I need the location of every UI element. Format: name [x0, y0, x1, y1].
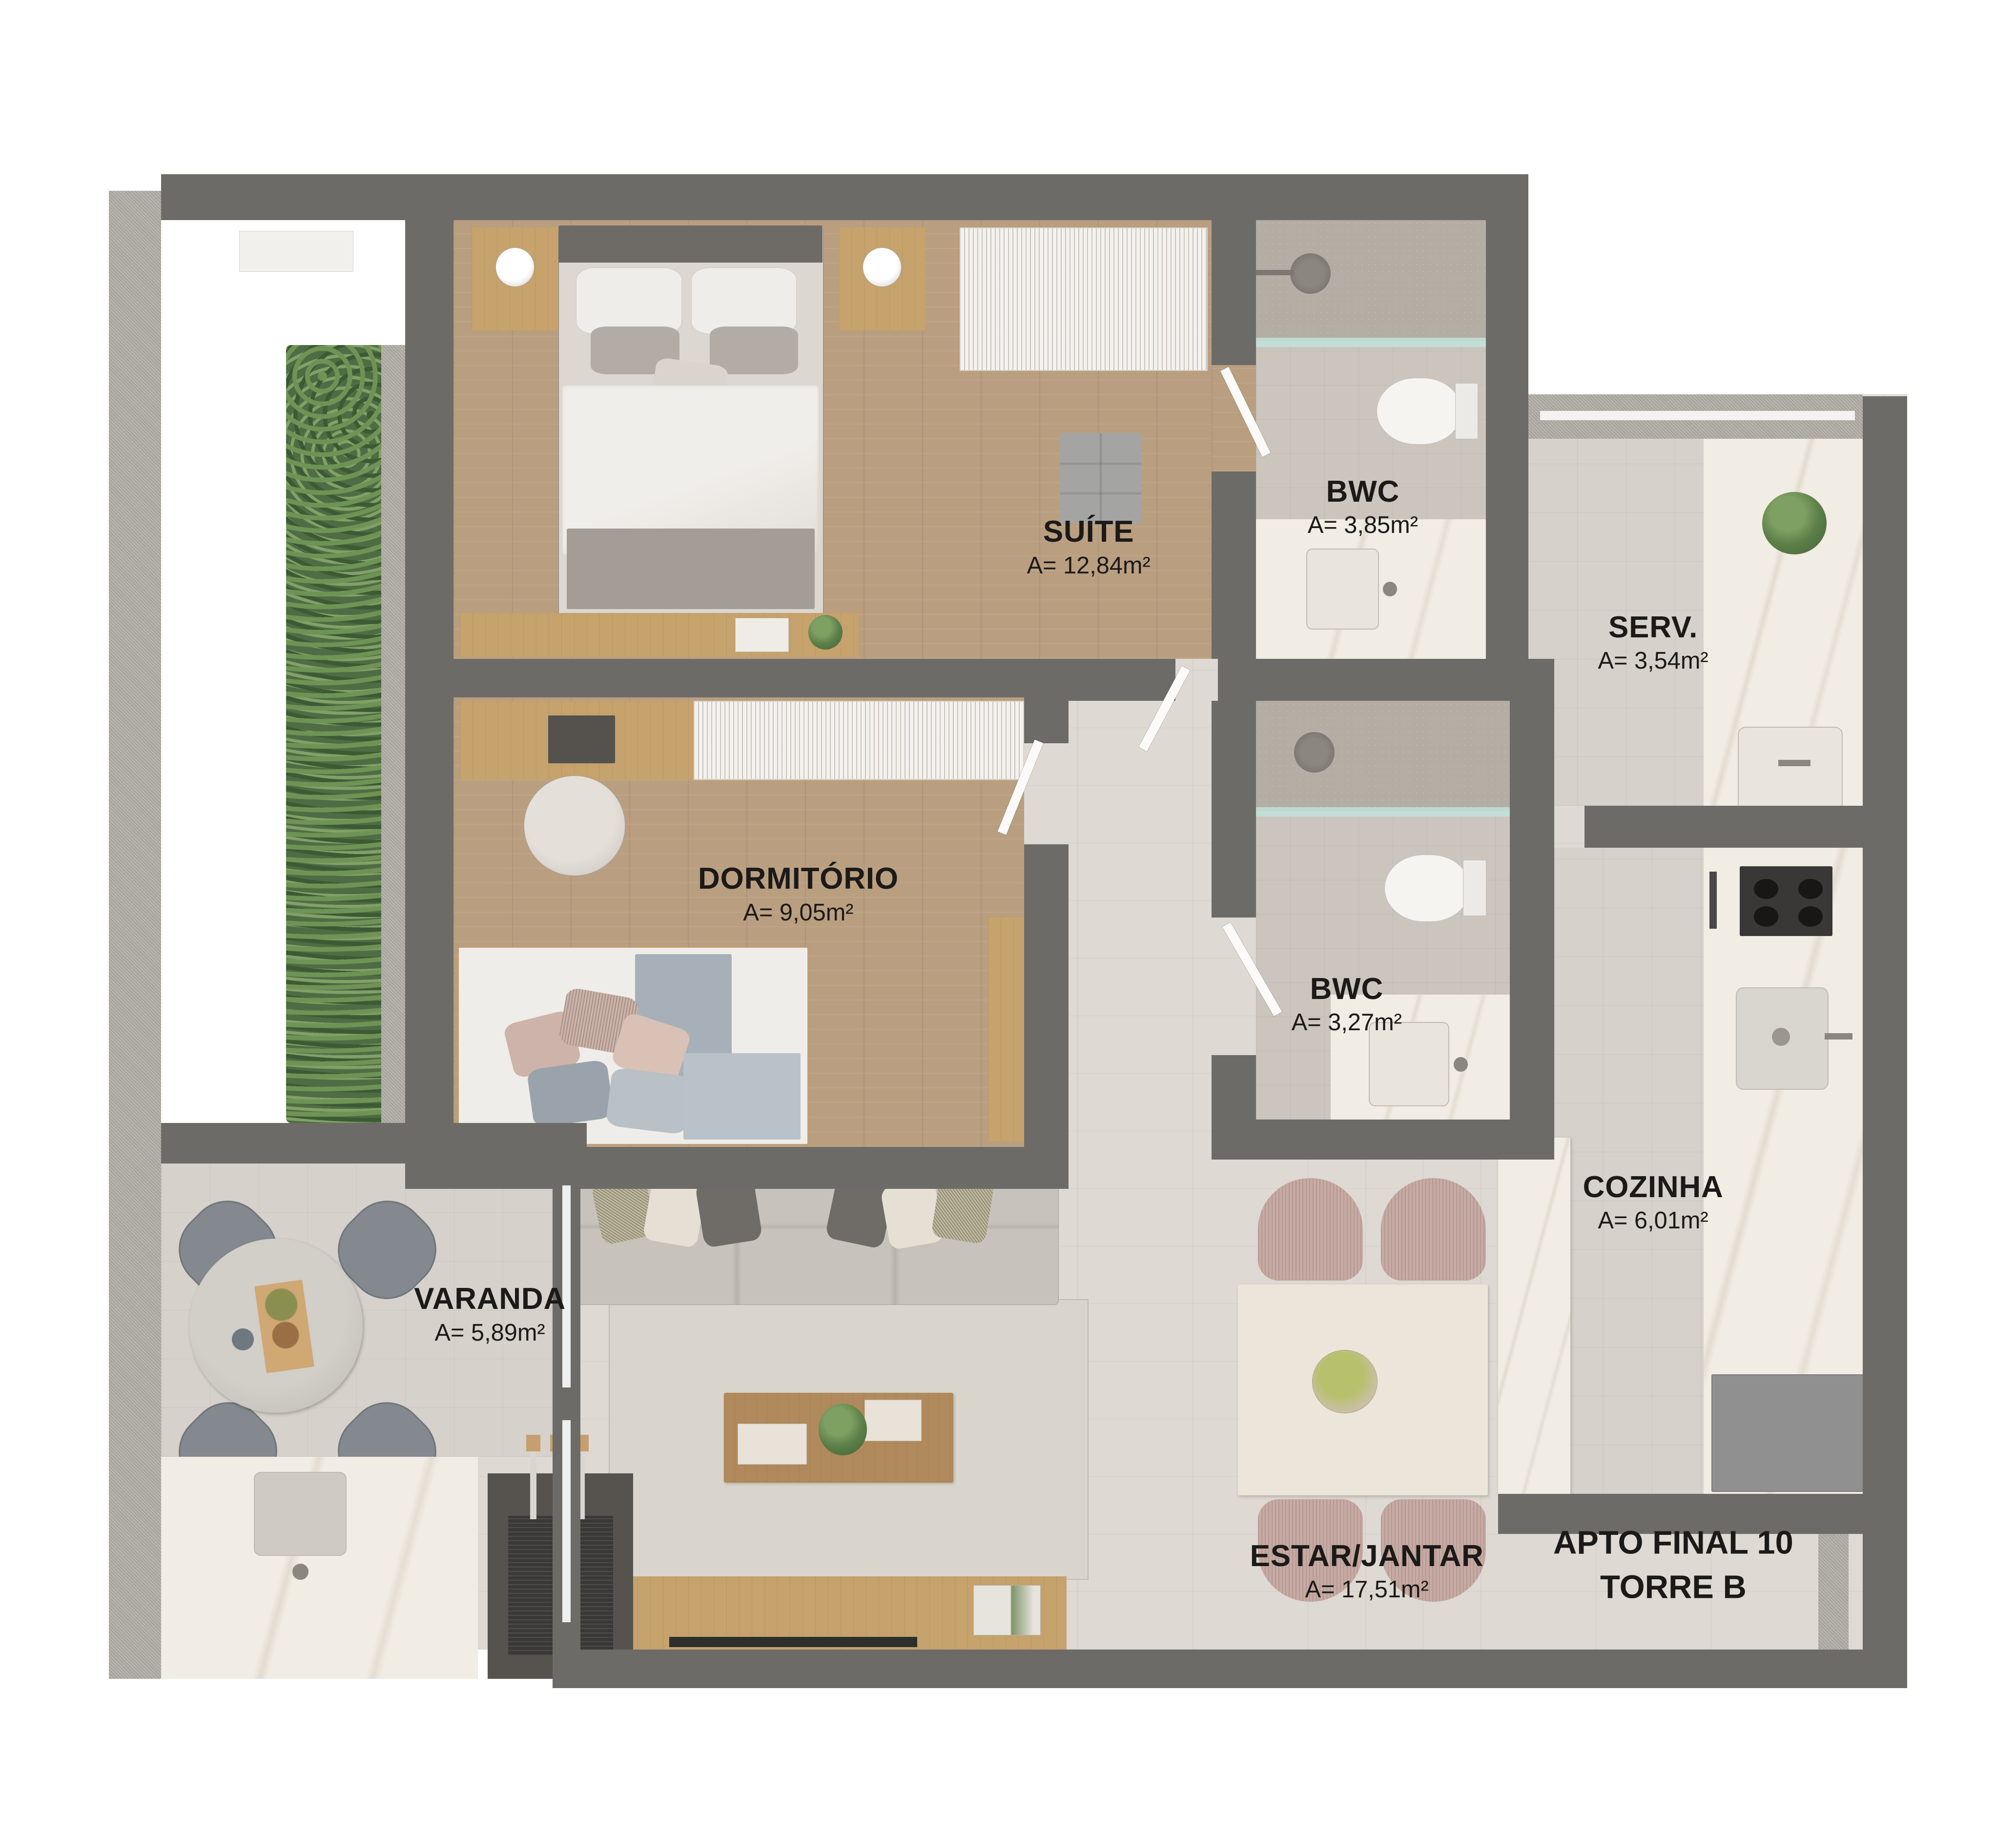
coffee-table-tray	[865, 1400, 922, 1441]
burner	[1754, 879, 1778, 899]
room-area: A= 17,51m²	[1250, 1575, 1484, 1605]
oven-handle	[1709, 872, 1716, 929]
clothes-rack	[240, 231, 352, 272]
room-label-serv: SERV. A= 3,54m²	[1598, 609, 1708, 676]
fruit-bowl	[1313, 1350, 1377, 1413]
outside-top-right	[1528, 0, 2016, 394]
room-name: VARANDA	[414, 1280, 566, 1318]
room-area: A= 3,54m²	[1598, 646, 1708, 676]
wall-bwc-social-right	[1510, 701, 1554, 1160]
shower-arm	[1256, 270, 1294, 275]
suite-console-tray	[736, 618, 788, 652]
burner	[1798, 906, 1823, 926]
shower-head-icon	[1290, 253, 1331, 294]
wall-dormitorio-right-lower	[1024, 844, 1069, 1189]
varanda-glass-door-pane	[562, 1420, 571, 1622]
dormitorio-pillow	[527, 1059, 615, 1128]
toilet-icon	[1377, 378, 1461, 444]
bwc-suite-glass-partition	[1256, 338, 1486, 347]
dining-chair	[1258, 1178, 1363, 1281]
wall-hall-top-b	[1218, 659, 1555, 701]
room-area: A= 9,05m²	[698, 897, 899, 927]
room-area: A= 3,85m²	[1308, 510, 1418, 540]
room-label-estar-jantar: ESTAR/JANTAR A= 17,51m²	[1250, 1537, 1484, 1604]
room-name: ESTAR/JANTAR	[1250, 1537, 1484, 1574]
suite-bed-headboard	[558, 225, 823, 262]
dormitorio-pillow	[606, 1067, 693, 1135]
suite-blanket	[567, 529, 815, 609]
serv-window-glass	[1540, 411, 1854, 420]
suite-pillow	[692, 268, 797, 334]
bwc-suite-shower-area	[1256, 220, 1486, 341]
toilet-icon	[1385, 855, 1469, 921]
room-area: A= 3,27m²	[1292, 1008, 1402, 1038]
suite-lamp-left	[496, 248, 534, 286]
toilet-tank	[1463, 860, 1485, 916]
room-label-cozinha: COZINHA A= 6,01m²	[1583, 1168, 1724, 1236]
exterior-concrete-pilaster	[1818, 1534, 1849, 1650]
dormitorio-laptop	[548, 715, 615, 763]
room-name: BWC	[1308, 473, 1418, 510]
room-name: SUÍTE	[1027, 513, 1151, 550]
wall-varanda-top	[161, 1123, 586, 1163]
kitchen-island	[1498, 1138, 1571, 1493]
suite-wardrobe	[960, 227, 1208, 370]
wall-bwc-social-left-upper	[1212, 701, 1256, 917]
unit-label-line1: APTO FINAL 10	[1553, 1521, 1793, 1565]
room-area: A= 6,01m²	[1583, 1206, 1724, 1236]
faucet-icon	[1383, 582, 1397, 596]
toilet-tank	[1456, 384, 1478, 439]
wall-suite-dormitorio	[405, 659, 1069, 697]
faucet-icon	[292, 1564, 309, 1580]
wall-left-dormitorio	[405, 659, 453, 1189]
skewer	[530, 1442, 536, 1519]
suite-ottoman	[1060, 433, 1141, 523]
wall-hall-top-a	[1069, 659, 1175, 701]
wall-bwc-serv-divider	[1486, 174, 1528, 701]
wall-top	[161, 174, 1528, 220]
exterior-concrete-left	[109, 191, 161, 1679]
room-name: SERV.	[1598, 609, 1708, 646]
coffee-table-tray	[738, 1424, 806, 1465]
bwc-suite-sink	[1306, 549, 1379, 629]
room-name: BWC	[1292, 970, 1402, 1008]
dining-chair	[1381, 1178, 1486, 1281]
room-label-dormitorio: DORMITÓRIO A= 9,05m²	[698, 860, 899, 927]
faucet-icon	[1825, 1033, 1853, 1040]
coffee-table-plant	[819, 1404, 867, 1455]
wall-serv-cozinha	[1584, 806, 1863, 848]
burner	[1798, 879, 1823, 899]
wall-suite-bwc-upper	[1212, 220, 1256, 365]
dormitorio-wardrobe	[694, 701, 1024, 780]
bwc-social-glass-partition	[1256, 807, 1510, 816]
wall-bottom	[553, 1650, 1907, 1688]
wall-bwc-social-bottom	[1212, 1120, 1554, 1160]
console-book	[974, 1586, 1040, 1635]
room-label-bwc-suite: BWC A= 3,85m²	[1308, 473, 1418, 540]
room-label-suite: SUÍTE A= 12,84m²	[1027, 513, 1151, 580]
stove-icon	[1740, 866, 1832, 936]
shower-head-icon	[1294, 732, 1335, 773]
wall-suite-bwc-lower	[1212, 471, 1256, 659]
floor-plan: SUÍTE A= 12,84m² BWC A= 3,85m² SERV. A= …	[0, 0, 2016, 1835]
unit-label-line2: TORRE B	[1553, 1565, 1793, 1609]
faucet-icon	[1778, 760, 1810, 766]
room-area: A= 12,84m²	[1027, 551, 1151, 581]
burner	[1754, 906, 1778, 926]
serv-plant	[1762, 492, 1827, 554]
tv-panel	[669, 1637, 917, 1647]
dormitorio-blanket	[683, 1053, 801, 1140]
room-name: DORMITÓRIO	[698, 860, 899, 897]
unit-label: APTO FINAL 10 TORRE B	[1553, 1521, 1793, 1610]
wall-dormitorio-right-upper	[1024, 697, 1069, 743]
room-name: COZINHA	[1583, 1168, 1724, 1206]
garden-curb	[381, 345, 406, 1123]
suite-console	[460, 613, 859, 657]
fridge	[1711, 1374, 1865, 1492]
skewer-handle	[526, 1435, 540, 1451]
room-label-bwc-social: BWC A= 3,27m²	[1292, 970, 1402, 1038]
room-label-varanda: VARANDA A= 5,89m²	[414, 1280, 566, 1347]
dormitorio-desk-chair	[524, 776, 625, 875]
faucet-icon	[1454, 1057, 1468, 1072]
wall-left-suite	[405, 220, 453, 659]
suite-lamp-right	[863, 248, 901, 286]
suite-pillow	[576, 268, 681, 334]
room-area: A= 5,89m²	[414, 1318, 566, 1347]
suite-console-plant	[808, 615, 843, 650]
varanda-sink	[254, 1472, 347, 1556]
